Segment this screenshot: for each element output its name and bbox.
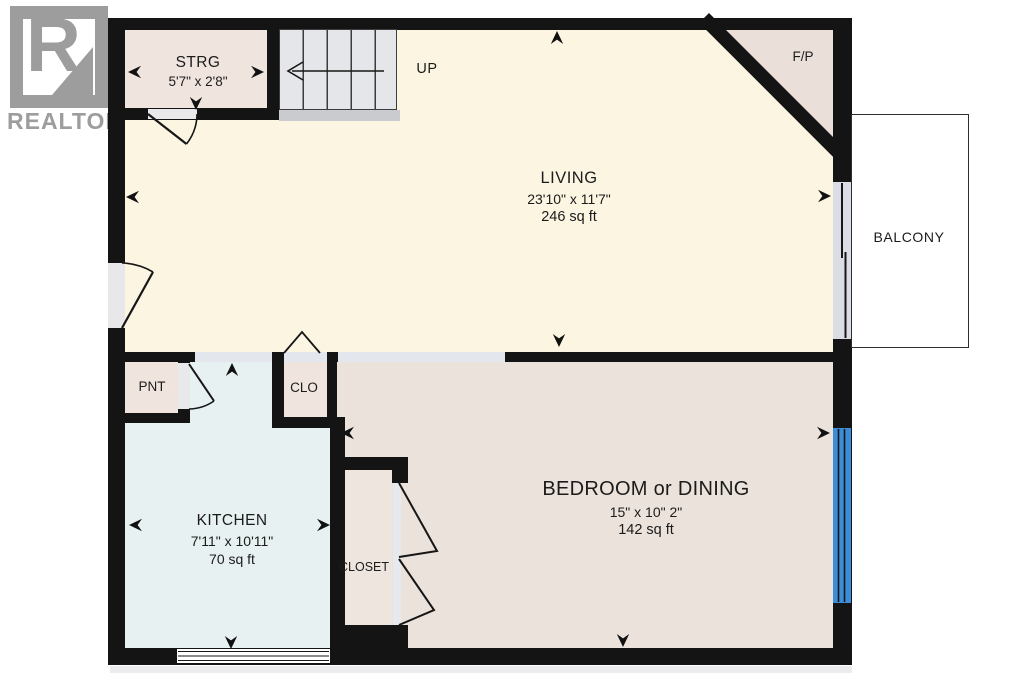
storage-door-arc-icon (187, 114, 198, 144)
room-dims: 23'10" x 11'7" (527, 191, 611, 207)
direction-arrow-icon (129, 519, 142, 531)
closet-bifold-top-icon (399, 483, 437, 557)
floorplan-symbols (0, 0, 1024, 682)
fireplace-label: F/P (792, 49, 813, 64)
room-dims: 5'7" x 2'8" (168, 74, 227, 89)
direction-arrow-icon (226, 363, 238, 376)
room-name: LIVING (527, 169, 611, 188)
direction-arrow-icon (818, 190, 831, 202)
direction-arrow-icon (553, 334, 565, 347)
pantry-door-leaf-icon (189, 364, 214, 401)
bedroom-label: BEDROOM or DINING 15" x 10" 2" 142 sq ft (542, 478, 749, 538)
hall-closet-bifold-icon (284, 332, 320, 353)
room-area: 246 sq ft (527, 209, 611, 225)
room-area: 142 sq ft (542, 522, 749, 538)
entry-door-leaf-icon (122, 272, 153, 328)
floorplan-canvas: R REALTOR® (0, 0, 1024, 682)
balcony-label: BALCONY (873, 229, 944, 247)
stairs-up-label: UP (416, 61, 437, 77)
closet-label: CLOSET (339, 558, 389, 576)
room-name: KITCHEN (191, 512, 274, 530)
direction-arrow-icon (551, 31, 563, 44)
storage-door-leaf-icon (148, 114, 187, 144)
pantry-label: PNT (139, 379, 166, 394)
direction-arrow-icon (225, 636, 237, 649)
storage-label: STRG 5'7" x 2'8" (168, 54, 227, 89)
room-name: STRG (168, 54, 227, 72)
direction-arrow-icon (817, 427, 830, 439)
direction-arrow-icon (617, 634, 629, 647)
room-dims: 7'11" x 10'11" (191, 533, 274, 549)
direction-arrow-icon (317, 519, 330, 531)
direction-arrow-icon (126, 191, 139, 203)
entry-door-arc-icon (122, 263, 153, 272)
closet-bifold-bottom-icon (399, 559, 434, 625)
room-name: BEDROOM or DINING (542, 478, 749, 501)
direction-arrow-icon (251, 66, 264, 78)
direction-arrow-icon (341, 427, 354, 439)
kitchen-label: KITCHEN 7'11" x 10'11" 70 sq ft (191, 512, 274, 567)
pantry-door-arc-icon (189, 401, 214, 409)
room-area: 70 sq ft (191, 551, 274, 567)
hall-closet-label: CLO (290, 380, 318, 395)
room-dims: 15" x 10" 2" (542, 504, 749, 520)
living-label: LIVING 23'10" x 11'7" 246 sq ft (527, 169, 611, 225)
direction-arrow-icon (190, 97, 202, 110)
direction-arrow-icon (128, 66, 141, 78)
